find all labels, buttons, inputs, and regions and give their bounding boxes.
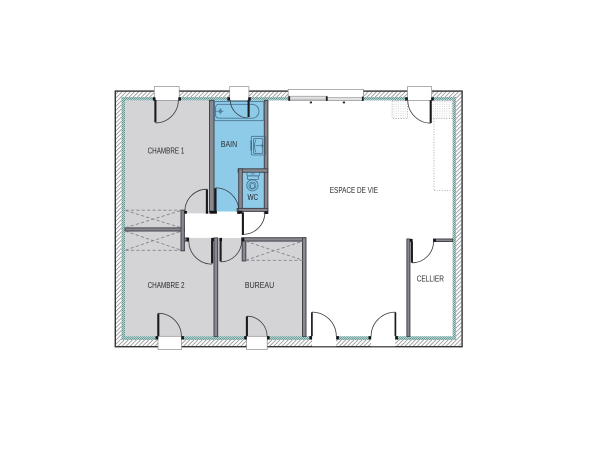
svg-text:BUREAU: BUREAU — [245, 281, 274, 290]
svg-text:CHAMBRE 1: CHAMBRE 1 — [148, 146, 185, 155]
svg-text:CELLIER: CELLIER — [417, 275, 444, 284]
svg-text:ESPACE DE VIE: ESPACE DE VIE — [330, 186, 378, 195]
svg-text:BAIN: BAIN — [221, 140, 237, 149]
svg-text:WC: WC — [248, 192, 259, 202]
svg-text:CHAMBRE 2: CHAMBRE 2 — [148, 281, 185, 290]
